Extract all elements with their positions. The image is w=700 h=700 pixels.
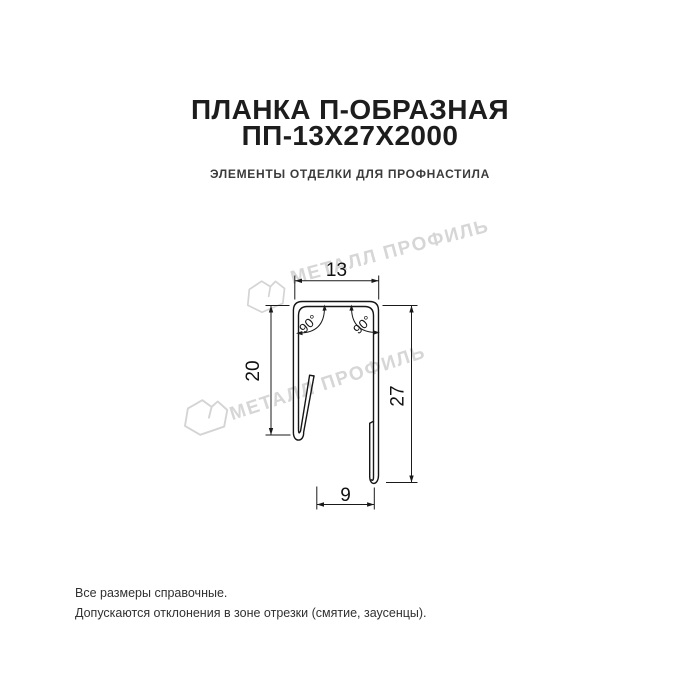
dim-20-label: 20 — [243, 360, 264, 381]
page: ПЛАНКА П-ОБРАЗНАЯ ПП-13Х27Х2000 ЭЛЕМЕНТЫ… — [0, 0, 700, 700]
title-line-2: ПП-13Х27Х2000 — [0, 123, 700, 149]
angle-right-label: 90° — [350, 313, 375, 337]
page-title: ПЛАНКА П-ОБРАЗНАЯ ПП-13Х27Х2000 — [0, 97, 700, 149]
dim-9-label: 9 — [340, 485, 351, 506]
footnote-line-2: Допускаются отклонения в зоне отрезки (с… — [75, 603, 427, 623]
dim-13-label: 13 — [326, 260, 347, 281]
profile-drawing: 13 20 27 9 90° 90° — [230, 250, 440, 520]
footnote-line-1: Все размеры справочные. — [75, 583, 427, 603]
dim-20-extension-lines — [266, 306, 291, 436]
dim-27-label: 27 — [388, 385, 409, 406]
footnotes: Все размеры справочные. Допускаются откл… — [75, 583, 427, 623]
brand-crystal-icon — [179, 395, 233, 438]
page-subtitle: ЭЛЕМЕНТЫ ОТДЕЛКИ ДЛЯ ПРОФНАСТИЛА — [0, 167, 700, 181]
